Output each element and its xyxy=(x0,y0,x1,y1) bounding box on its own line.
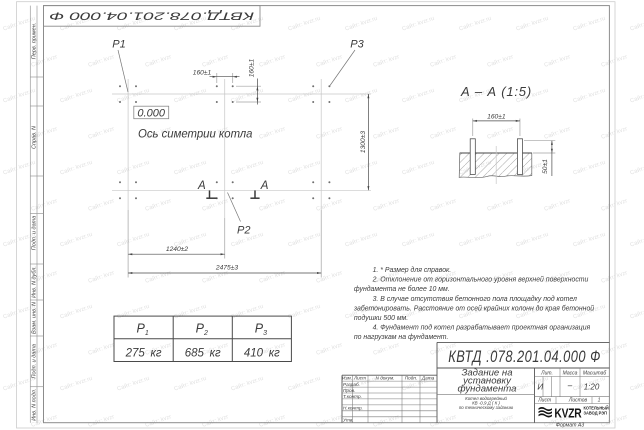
svg-text:ЗАВОД РЭП: ЗАВОД РЭП xyxy=(584,411,608,416)
svg-text:275 кг: 275 кг xyxy=(125,347,162,359)
svg-text:Подп.: Подп. xyxy=(405,376,417,381)
svg-text:2. Отклонение от горизонтальн: 2. Отклонение от горизонтального уровня … xyxy=(372,276,589,284)
svg-text:Подп. и дата: Подп. и дата xyxy=(31,216,37,250)
svg-text:Т.контр.: Т.контр. xyxy=(343,394,362,399)
svg-text:по техническому заданию: по техническому заданию xyxy=(459,405,514,410)
svg-text:КВТД .078.201.04.000 Ф: КВТД .078.201.04.000 Ф xyxy=(448,348,601,366)
svg-text:Инв. N подл.: Инв. N подл. xyxy=(31,389,37,421)
svg-text:410 кг: 410 кг xyxy=(244,347,280,359)
svg-text:P1: P1 xyxy=(112,39,125,51)
svg-text:Лист: Лист xyxy=(353,376,366,381)
svg-text:КОТЕЛЬНЫЙ: КОТЕЛЬНЫЙ xyxy=(584,404,609,411)
svg-text:А – А (1:5): А – А (1:5) xyxy=(460,84,532,99)
svg-text:Взам. инв. N: Взам. инв. N xyxy=(31,302,37,334)
svg-text:0.000: 0.000 xyxy=(137,108,165,120)
svg-text:Разраб.: Разраб. xyxy=(343,382,360,387)
svg-text:по нагрузкам на фундамент.: по нагрузкам на фундамент. xyxy=(354,333,449,341)
svg-text:Н.контр.: Н.контр. xyxy=(343,406,363,411)
svg-text:Справ. N: Справ. N xyxy=(31,126,37,149)
svg-text:3. В случае отсутствия бетонн: 3. В случае отсутствия бетонного пола пл… xyxy=(373,295,577,303)
svg-text:подушки 500 мм.: подушки 500 мм. xyxy=(354,314,408,322)
svg-text:A: A xyxy=(197,180,206,192)
svg-text:160±1: 160±1 xyxy=(193,70,212,77)
svg-text:KVZR: KVZR xyxy=(554,405,582,421)
svg-text:1: 1 xyxy=(598,398,601,404)
svg-text:–: – xyxy=(567,381,573,390)
svg-text:КВТД.078.201.04.000 Ф: КВТД.078.201.04.000 Ф xyxy=(48,10,254,22)
svg-text:Ось симетрии котла: Ось симетрии котла xyxy=(138,127,253,141)
svg-text:Формат А3: Формат А3 xyxy=(556,423,584,429)
svg-text:Инв. N дубл.: Инв. N дубл. xyxy=(31,266,37,298)
svg-text:Масштаб: Масштаб xyxy=(583,370,607,376)
svg-text:4. Фундамент под котел разраб: 4. Фундамент под котел разрабатывает про… xyxy=(373,324,591,332)
svg-text:1300±3: 1300±3 xyxy=(360,131,367,154)
svg-text:Лит.: Лит. xyxy=(540,370,553,376)
svg-text:685 кг: 685 кг xyxy=(185,347,221,359)
svg-text:И: И xyxy=(537,383,543,392)
svg-text:1:20: 1:20 xyxy=(584,383,600,392)
svg-text:2475±3: 2475±3 xyxy=(215,265,239,272)
svg-text:P2: P2 xyxy=(237,225,250,237)
svg-text:забетонировать. Расстояние от: забетонировать. Расстояние от осей крайн… xyxy=(353,304,594,312)
svg-text:160±1: 160±1 xyxy=(487,114,506,121)
svg-text:160±1: 160±1 xyxy=(249,58,256,77)
svg-text:фундамента: фундамента xyxy=(458,384,517,395)
svg-text:A: A xyxy=(260,180,269,192)
svg-text:Подп. и дата: Подп. и дата xyxy=(31,344,37,378)
svg-text:Дата: Дата xyxy=(421,376,435,381)
svg-text:Перв. примен.: Перв. примен. xyxy=(31,23,37,60)
svg-text:P3: P3 xyxy=(350,39,364,51)
svg-text:Масса: Масса xyxy=(563,370,578,376)
svg-text:Изм.: Изм. xyxy=(342,376,352,381)
svg-text:Пров.: Пров. xyxy=(343,388,355,393)
svg-text:Листов: Листов xyxy=(568,398,588,404)
svg-text:1240±2: 1240±2 xyxy=(166,246,189,253)
svg-text:1. * Размер для справок.: 1. * Размер для справок. xyxy=(373,266,452,274)
svg-text:50±1: 50±1 xyxy=(542,159,549,174)
svg-text:Утв.: Утв. xyxy=(343,418,354,423)
svg-text:Лист: Лист xyxy=(537,398,551,404)
svg-text:N докум.: N докум. xyxy=(376,376,395,381)
svg-text:фундамента не более 10 мм.: фундамента не более 10 мм. xyxy=(354,285,450,293)
